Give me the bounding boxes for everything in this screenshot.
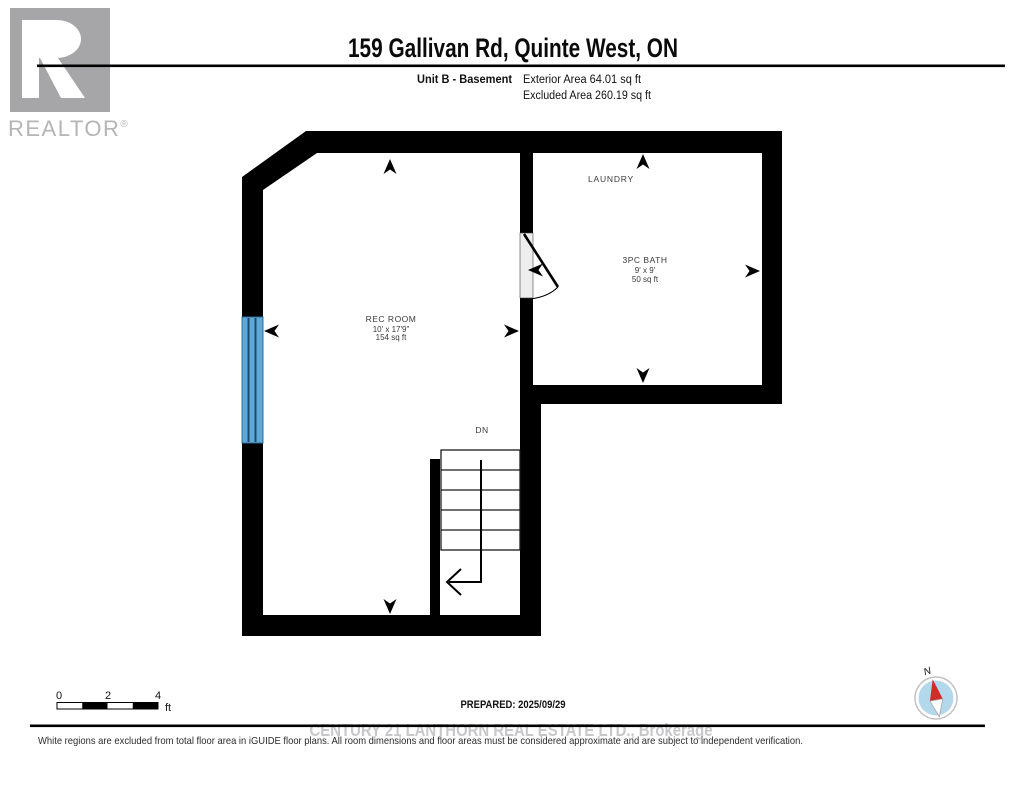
- window: [242, 317, 263, 443]
- scale-tick-2: 2: [105, 690, 111, 702]
- compass-north-label: N: [922, 665, 933, 678]
- floor-plan: LAUNDRY 3PC BATH 9' x 9' 50 sq ft REC RO…: [242, 131, 782, 636]
- footer-divider: [30, 725, 985, 728]
- floorplan-page: REALTOR® 159 Gallivan Rd, Quinte West, O…: [0, 0, 1024, 791]
- rec-room-label: REC ROOM: [366, 314, 417, 324]
- excluded-area-label: Excluded Area 260.19 sq ft: [523, 90, 652, 102]
- realtor-wordmark: REALTOR®: [8, 116, 129, 141]
- laundry-label: LAUNDRY: [588, 174, 634, 184]
- exterior-area-label: Exterior Area 64.01 sq ft: [523, 74, 642, 86]
- bath-label: 3PC BATH: [623, 255, 668, 265]
- bath-dimensions: 9' x 9': [635, 266, 656, 275]
- stair-wall: [430, 459, 440, 615]
- scale-unit-label: ft: [165, 702, 171, 714]
- scale-tick-4: 4: [155, 690, 161, 702]
- stairs-dn-label: DN: [475, 425, 488, 435]
- prepared-date: PREPARED: 2025/09/29: [461, 699, 566, 711]
- header-divider: [37, 65, 1005, 68]
- scale-bar: 0 2 4 ft: [56, 690, 171, 714]
- unit-label: Unit B - Basement: [417, 72, 512, 86]
- page-title: 159 Gallivan Rd, Quinte West, ON: [348, 33, 678, 63]
- rec-room-area: 154 sq ft: [376, 333, 407, 342]
- header: 159 Gallivan Rd, Quinte West, ON Unit B …: [37, 33, 1005, 102]
- disclaimer-text: White regions are excluded from total fl…: [38, 735, 803, 747]
- realtor-logo: REALTOR®: [8, 8, 129, 141]
- compass: N: [915, 665, 957, 719]
- bath-area: 50 sq ft: [632, 275, 659, 284]
- footer: 0 2 4 ft PREPARED: 2025/09/29 CENTURY 21…: [30, 665, 985, 747]
- scale-tick-0: 0: [56, 690, 62, 702]
- floorplan-canvas: REALTOR® 159 Gallivan Rd, Quinte West, O…: [0, 0, 1024, 791]
